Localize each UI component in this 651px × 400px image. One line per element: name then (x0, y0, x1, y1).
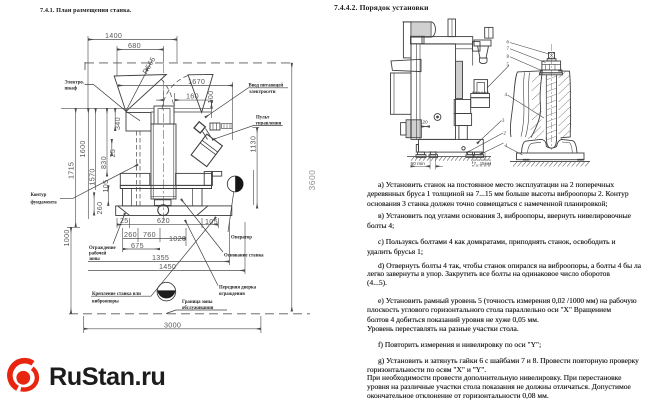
svg-text:виброопоры: виброопоры (92, 300, 119, 305)
svg-text:зоны: зоны (89, 257, 100, 262)
svg-text:Основание станка: Основание станка (224, 254, 264, 259)
svg-text:шкаф: шкаф (65, 86, 78, 91)
svg-text:1570: 1570 (88, 168, 97, 185)
svg-text:1130: 1130 (248, 136, 257, 153)
svg-text:7...15мм: 7...15мм (474, 161, 491, 166)
svg-text:3600: 3600 (307, 170, 317, 191)
svg-text:ограждения: ограждения (219, 292, 245, 297)
svg-text:830: 830 (99, 156, 108, 169)
svg-text:Передняя дверка: Передняя дверка (219, 286, 257, 291)
svg-text:1715: 1715 (66, 162, 75, 179)
svg-text:1355: 1355 (152, 253, 169, 262)
svg-text:760: 760 (143, 230, 156, 239)
svg-text:8: 8 (507, 55, 510, 60)
svg-text:Контур: Контур (31, 193, 47, 198)
svg-text:1000: 1000 (62, 229, 71, 246)
svg-text:Пульт: Пульт (256, 115, 270, 120)
svg-text:R565: R565 (140, 55, 157, 75)
svg-text:1600: 1600 (78, 140, 87, 157)
svg-text:3000: 3000 (164, 321, 181, 330)
svg-text:фундамента: фундамента (31, 201, 58, 206)
svg-text:1400: 1400 (105, 31, 122, 40)
svg-text:Граница зоны: Граница зоны (182, 300, 213, 305)
svg-text:4: 4 (505, 93, 508, 98)
svg-text:Электро.: Электро. (65, 80, 84, 85)
svg-text:3: 3 (502, 119, 505, 124)
svg-text:105: 105 (205, 217, 218, 226)
svg-text:260: 260 (95, 202, 104, 215)
svg-text:25: 25 (120, 216, 129, 225)
svg-text:680: 680 (128, 41, 141, 50)
svg-text:7: 7 (507, 47, 510, 52)
svg-text:Ограждение: Ограждение (89, 246, 116, 251)
svg-text:рабочей: рабочей (89, 252, 107, 257)
svg-text:1450: 1450 (159, 262, 176, 271)
svg-text:1020: 1020 (169, 234, 186, 243)
svg-text:340: 340 (113, 117, 122, 130)
svg-text:6: 6 (507, 41, 510, 46)
svg-text:25: 25 (108, 149, 117, 158)
svg-text:260: 260 (124, 230, 137, 239)
svg-text:Оператор: Оператор (231, 236, 252, 241)
svg-text:2: 2 (504, 132, 507, 137)
svg-text:675: 675 (131, 241, 144, 250)
svg-text:620: 620 (157, 216, 170, 225)
svg-text:электросети: электросети (249, 90, 276, 95)
